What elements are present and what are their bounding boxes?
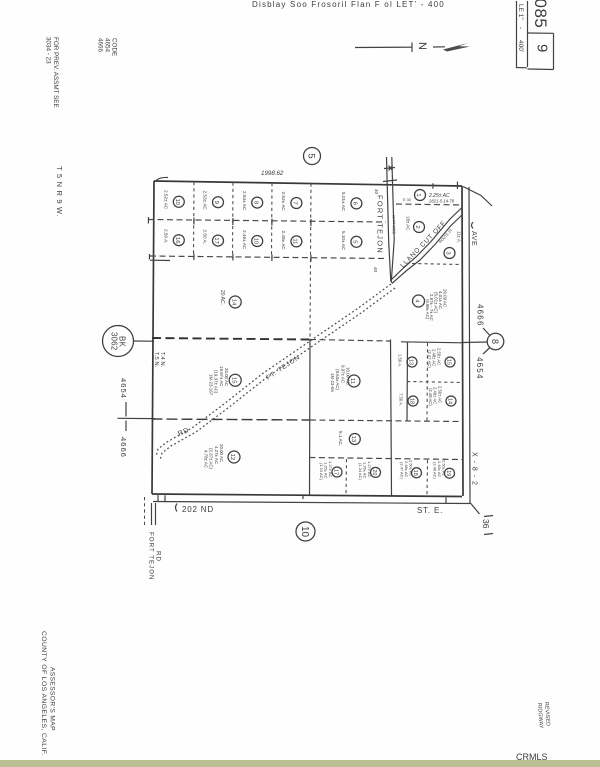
svg-text:6: 6 — [352, 202, 358, 205]
svg-text:8: 8 — [252, 201, 258, 204]
svg-text:9: 9 — [534, 44, 551, 52]
svg-text:T.5 N.: T.5 N. — [153, 352, 159, 368]
svg-text:COUNTY OF LOS ANGELES, CAL: COUNTY OF LOS ANGELES, CALIF. — [40, 631, 47, 756]
svg-text:4.78± AC: 4.78± AC — [203, 450, 208, 468]
svg-text:13: 13 — [350, 436, 356, 442]
svg-text:ST. E.: ST. E. — [417, 506, 443, 515]
svg-text:1: 1 — [415, 193, 421, 196]
svg-text:4654: 4654 — [475, 357, 484, 380]
svg-text:4666: 4666 — [476, 304, 485, 327]
svg-text:15: 15 — [230, 377, 236, 383]
svg-text:X - 8 - 2: X - 8 - 2 — [471, 452, 478, 486]
svg-text:(9.98± AC): (9.98± AC) — [425, 299, 430, 320]
svg-text:202 ND: 202 ND — [182, 505, 214, 514]
svg-text:1M-23-167: 1M-23-167 — [208, 374, 213, 396]
svg-text:10: 10 — [299, 526, 310, 538]
svg-text:13: 13 — [407, 359, 413, 365]
svg-text:2821-5-14-78: 2821-5-14-78 — [428, 199, 455, 204]
svg-text:8: 8 — [490, 339, 500, 344]
svg-text:RD: RD — [155, 551, 162, 562]
svg-text:15: 15 — [445, 359, 451, 365]
svg-text:FOR PREV. ASSMT SEE: FOR PREV. ASSMT SEE — [52, 37, 59, 108]
svg-text:FORT TEJON: FORT TEJON — [376, 195, 385, 254]
svg-text:9: 9 — [213, 201, 219, 204]
svg-text:60 FT WIDE: 60 FT WIDE — [392, 215, 396, 235]
svg-text:2: 2 — [414, 225, 420, 228]
svg-text:(1.23 AC): (1.23 AC) — [319, 463, 324, 481]
svg-text:5: 5 — [352, 240, 358, 243]
svg-text:10: 10 — [174, 199, 180, 205]
svg-text:1998.62: 1998.62 — [261, 170, 284, 177]
svg-text:18± AC: 18± AC — [406, 216, 411, 230]
svg-text:E 30: E 30 — [403, 198, 411, 202]
svg-text:(2.46 AC): (2.46 AC) — [432, 462, 437, 480]
svg-text:7: 7 — [292, 201, 298, 204]
svg-text:12: 12 — [229, 454, 235, 460]
svg-text:CODE: CODE — [111, 38, 118, 56]
svg-text:2.50 A.: 2.50 A. — [203, 230, 208, 245]
svg-text:ASSESSOR’S MAP: ASSESSOR’S MAP — [49, 667, 56, 731]
svg-text:(2.47 AC): (2.47 AC) — [427, 350, 432, 368]
svg-text:Disblay Soo Frosoril Flan: Disblay Soo Frosoril Flan F ol LET’ - 40… — [252, 0, 445, 9]
svg-text:FORT TEJON: FORT TEJON — [148, 532, 155, 581]
svg-text:14: 14 — [230, 299, 236, 306]
svg-text:4666: 4666 — [97, 38, 104, 53]
svg-text:3034 - 23: 3034 - 23 — [45, 37, 52, 64]
svg-text:085: 085 — [531, 0, 550, 28]
svg-text:AVE: AVE — [470, 231, 477, 246]
svg-text:2.52± AC: 2.52± AC — [281, 192, 286, 212]
svg-text:11: 11 — [292, 238, 298, 244]
svg-text:(2.48 AC): (2.48 AC) — [428, 388, 433, 406]
svg-text:3062: 3062 — [110, 332, 119, 351]
svg-text:1M-23-66: 1M-23-66 — [330, 373, 335, 392]
svg-text:5.10± AC: 5.10± AC — [341, 231, 346, 251]
svg-text:2.46± AC: 2.46± AC — [242, 230, 247, 250]
svg-text:5: 5 — [306, 153, 317, 158]
svg-text:2.50 A.: 2.50 A. — [164, 229, 169, 244]
svg-text:40: 40 — [374, 189, 379, 195]
svg-text:16: 16 — [174, 237, 180, 243]
svg-text:5.1 AC.: 5.1 AC. — [338, 431, 343, 446]
svg-text:11± A.: 11± A. — [457, 231, 462, 243]
svg-text:36: 36 — [481, 519, 491, 529]
svg-text:2.54± AC: 2.54± AC — [242, 191, 247, 211]
svg-text:4654: 4654 — [119, 378, 128, 399]
svg-text:-: - — [517, 27, 524, 29]
svg-text:5.01± AC: 5.01± AC — [341, 192, 346, 212]
svg-text:10: 10 — [252, 238, 258, 244]
svg-text:(2.47 AC): (2.47 AC) — [399, 462, 404, 480]
svg-text:2.52± AC: 2.52± AC — [164, 190, 169, 210]
svg-text:(1.24 AC): (1.24 AC) — [358, 463, 363, 481]
svg-text:7.50 A.: 7.50 A. — [399, 393, 404, 406]
svg-text:4666: 4666 — [119, 437, 128, 458]
svg-text:N: N — [416, 42, 428, 50]
svg-text:17: 17 — [213, 237, 219, 243]
svg-text:14: 14 — [446, 398, 452, 404]
svg-text:2.53± AC: 2.53± AC — [203, 191, 208, 211]
svg-text:40: 40 — [373, 267, 378, 273]
svg-text:T 5 N R 9 W.: T 5 N R 9 W. — [55, 166, 64, 217]
svg-text:LE 1": LE 1" — [517, 4, 524, 20]
svg-text:4654: 4654 — [104, 38, 111, 53]
svg-text:18: 18 — [408, 398, 414, 404]
svg-text:2.49± AC: 2.49± AC — [281, 231, 286, 251]
svg-text:1.50 A.: 1.50 A. — [398, 354, 403, 367]
svg-text:T.4 N.: T.4 N. — [159, 352, 165, 368]
svg-text:20 AC.: 20 AC. — [219, 290, 225, 305]
svg-text:3: 3 — [445, 251, 451, 254]
svg-text:400’: 400’ — [517, 40, 524, 53]
